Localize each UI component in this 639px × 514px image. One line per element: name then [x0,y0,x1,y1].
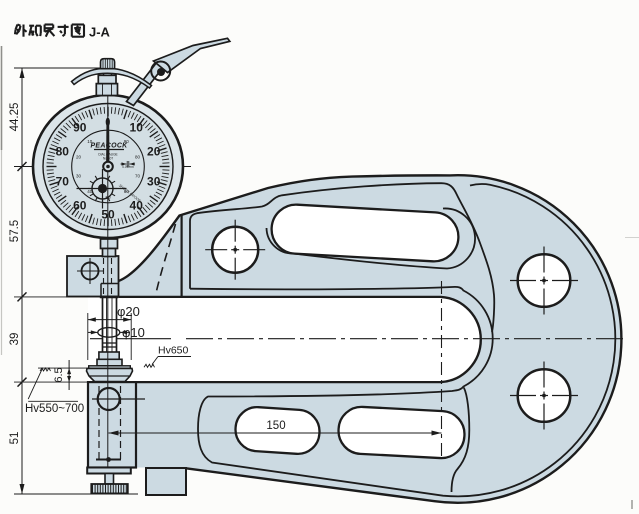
svg-text:57.5: 57.5 [9,220,21,242]
svg-text:80: 80 [135,154,141,159]
svg-text:51: 51 [9,432,21,445]
svg-text:6.5: 6.5 [53,367,65,382]
svg-text:20: 20 [76,154,82,159]
svg-text:10: 10 [130,121,144,135]
svg-text:70: 70 [135,174,141,179]
svg-text:φ20: φ20 [117,304,140,319]
svg-text:80: 80 [56,145,70,159]
svg-text:70: 70 [56,174,70,188]
svg-text:60: 60 [73,198,87,212]
svg-text:150: 150 [266,420,285,432]
svg-text:Hv650: Hv650 [158,345,189,357]
svg-text:39: 39 [9,333,21,346]
svg-text:30: 30 [76,174,82,179]
svg-text:0.01mm: 0.01mm [122,165,134,169]
svg-text:44.25: 44.25 [9,103,21,132]
svg-text:φ10: φ10 [122,325,145,340]
svg-text:90: 90 [73,121,87,135]
svg-text:Hv550~700: Hv550~700 [25,403,84,415]
svg-text:30: 30 [147,174,161,188]
svg-text:J-A: J-A [89,25,111,40]
svg-text:20: 20 [147,145,161,159]
